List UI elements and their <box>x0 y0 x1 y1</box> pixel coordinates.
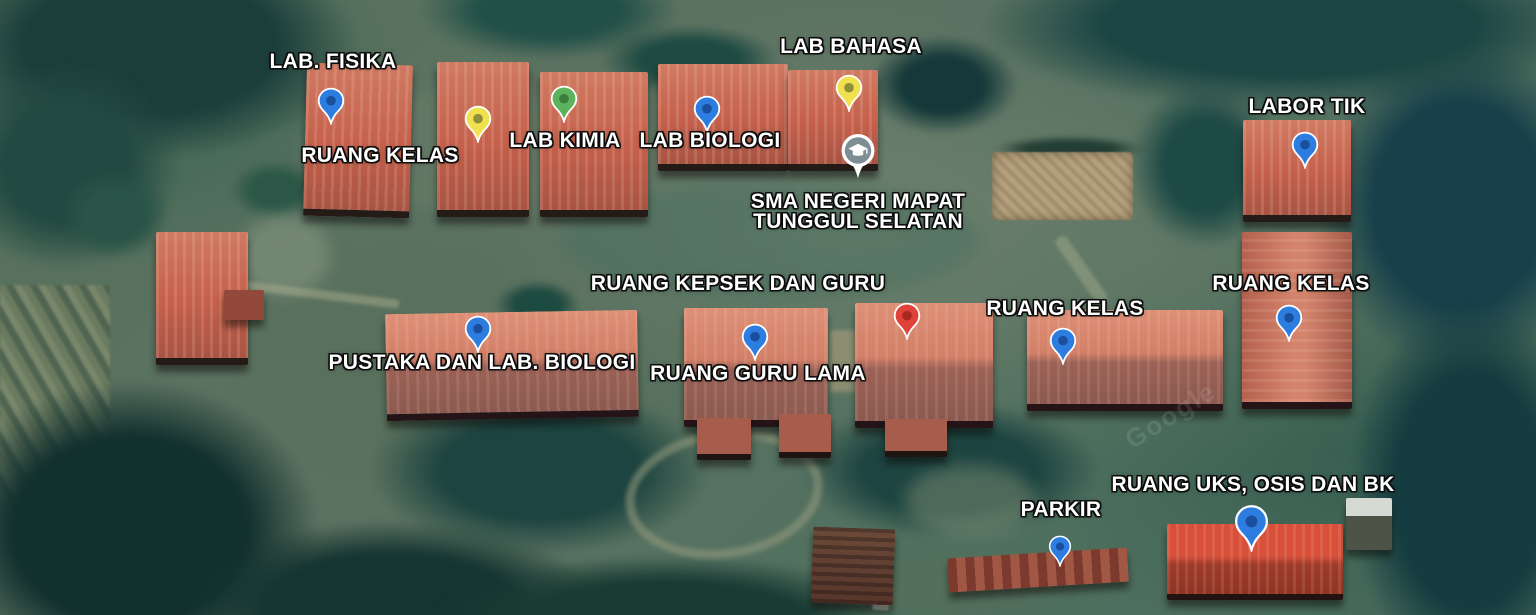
marker-label: LAB BIOLOGI <box>640 129 781 153</box>
building-parkir-canopy <box>947 548 1129 593</box>
map-pin-uks-osis-bk[interactable] <box>1234 504 1269 552</box>
map-pin-lab-biologi[interactable] <box>693 95 721 133</box>
building-kepsek-porch <box>885 419 947 457</box>
dirt-field <box>992 152 1133 220</box>
dirt-patch <box>240 215 330 295</box>
map-pin-kepsek-dan-guru[interactable] <box>893 302 921 340</box>
marker-label: LAB KIMIA <box>509 129 620 153</box>
tree-cluster <box>1350 300 1536 615</box>
building-west-annex <box>224 290 264 320</box>
marker-label: RUANG KELAS <box>1212 272 1369 296</box>
marker-label: PUSTAKA DAN LAB. BIOLOGI <box>328 351 635 375</box>
map-pin-lab-fisika[interactable] <box>317 87 345 125</box>
map-pin-lab-bahasa[interactable] <box>835 74 863 112</box>
map-pin-ruang-kelas-east[interactable] <box>1275 304 1303 342</box>
school-name-line2: TUNGGUL SELATAN <box>751 212 965 232</box>
tree-cluster <box>980 0 1536 110</box>
marker-label: RUANG GURU LAMA <box>650 362 866 386</box>
marker-label: RUANG KELAS <box>986 297 1143 321</box>
marker-label: RUANG KEPSEK DAN GURU <box>591 272 886 296</box>
marker-label: LABOR TIK <box>1248 95 1365 119</box>
marker-label: LAB BAHASA <box>780 35 922 59</box>
map-pin-parkir[interactable] <box>1048 535 1072 567</box>
map-pin-labor-tik[interactable] <box>1291 131 1319 169</box>
building-lab-biologi <box>658 64 788 171</box>
building-guru-lama-porch <box>779 414 831 458</box>
map-pin-ruang-kelas-top[interactable] <box>464 105 492 143</box>
school-name-line1: SMA NEGERI MAPAT <box>751 192 965 212</box>
building-ruang-kelas-nw <box>303 63 413 219</box>
map-pin-pustaka[interactable] <box>464 315 492 353</box>
school-poi-marker[interactable] <box>838 132 878 182</box>
building-small-shed <box>1346 498 1392 550</box>
tree-cluster <box>60 170 170 260</box>
marker-label: RUANG KELAS <box>301 144 458 168</box>
school-name-label: SMA NEGERI MAPAT TUNGGUL SELATAN <box>751 192 965 232</box>
grass-patch <box>905 465 1035 535</box>
marker-label: LAB. FISIKA <box>270 50 397 74</box>
satellite-map[interactable]: Google <box>0 0 1536 615</box>
building-kepsek-dan-guru <box>855 303 993 428</box>
map-pin-ruang-guru-lama[interactable] <box>741 323 769 361</box>
building-guru-lama-porch <box>697 418 751 460</box>
map-pin-ruang-kelas-mid[interactable] <box>1049 327 1077 365</box>
building-rusty-shed <box>811 527 896 606</box>
marker-label: PARKIR <box>1021 498 1102 522</box>
map-pin-lab-kimia[interactable] <box>550 85 578 123</box>
marker-label: RUANG UKS, OSIS DAN BK <box>1111 473 1394 497</box>
